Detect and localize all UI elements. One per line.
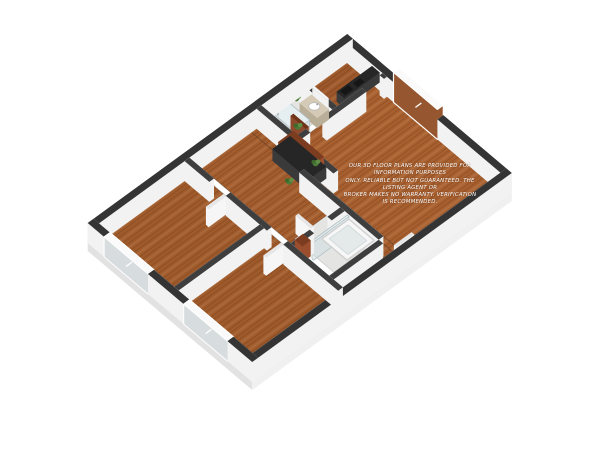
- faucet-icon: [316, 103, 318, 105]
- disclaimer-line: BROKER MAKES NO WARRANTY. VERIFICATION I…: [342, 192, 478, 207]
- plant-icon: [311, 160, 315, 164]
- plant-icon: [285, 178, 289, 182]
- floorplan-3d-render: [0, 0, 600, 450]
- plant-icon: [294, 123, 298, 127]
- sink-icon: [309, 103, 320, 111]
- plant-icon: [316, 159, 320, 163]
- plant-icon: [289, 178, 293, 182]
- plant-icon: [298, 123, 302, 127]
- disclaimer-line: ONLY. RELIABLE BUT NOT GUARANTEED. THE L…: [342, 178, 478, 193]
- disclaimer-text: OUR 3D FLOOR PLANS ARE PROVIDED FOR INFO…: [342, 163, 478, 207]
- disclaimer-line: OUR 3D FLOOR PLANS ARE PROVIDED FOR INFO…: [342, 163, 478, 178]
- floorplan-viewport: OUR 3D FLOOR PLANS ARE PROVIDED FOR INFO…: [0, 0, 600, 450]
